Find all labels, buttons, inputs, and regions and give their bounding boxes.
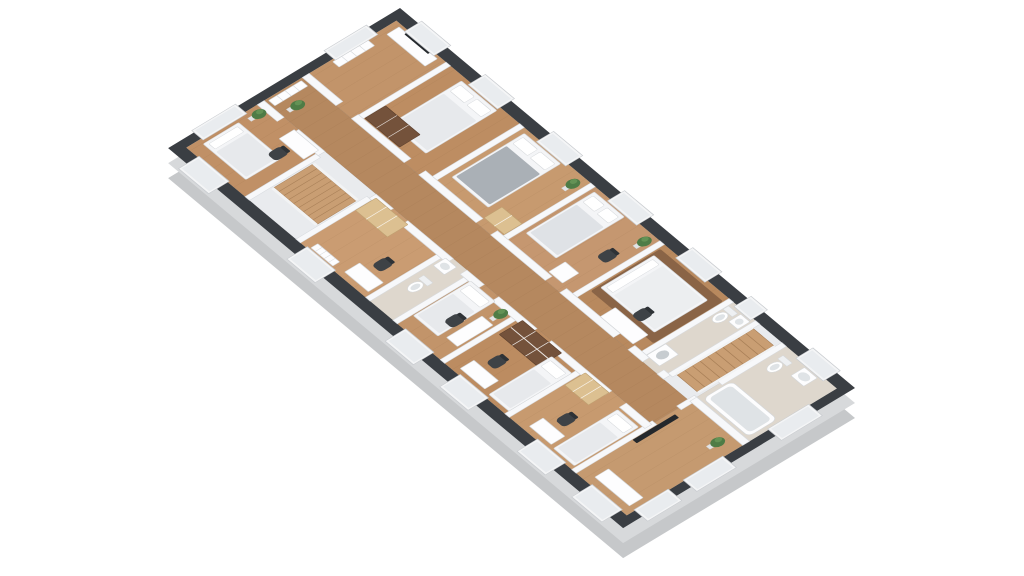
floor-plan-canvas (0, 0, 1024, 576)
floor-plan-rendering (0, 0, 1024, 576)
